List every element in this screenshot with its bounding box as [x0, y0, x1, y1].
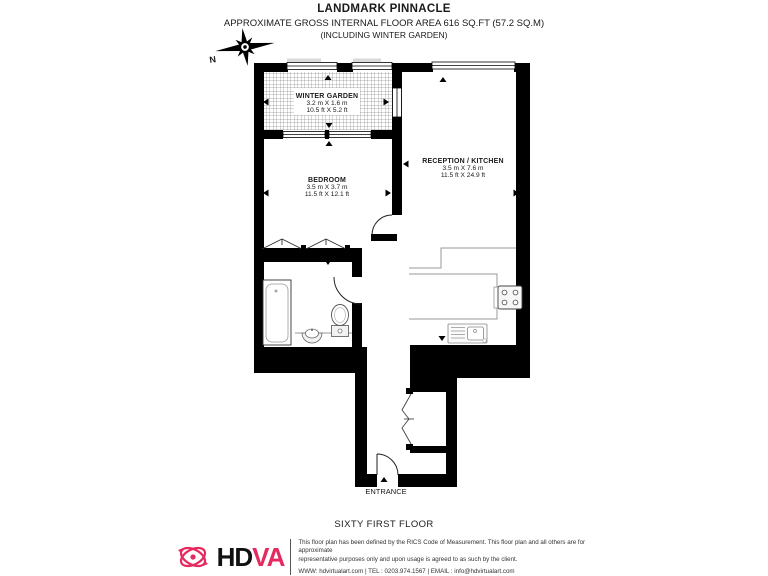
floor-name: SIXTY FIRST FLOOR	[0, 519, 768, 530]
kitchen-sink	[448, 324, 487, 343]
bedroom-door	[372, 215, 392, 235]
bedroom-imperial: 11.5 ft X 12.1 ft	[305, 191, 349, 198]
bedroom-label: BEDROOM	[308, 177, 346, 184]
bathroom-sink	[302, 329, 322, 343]
winter-garden-label: WINTER GARDEN	[296, 93, 359, 100]
disclaimer-line2: representative purposes only and upon us…	[298, 556, 517, 563]
contact-line: WWW: hdvirtualart.com | TEL : 0203.974.1…	[298, 568, 593, 575]
brand-hd: HD	[217, 542, 253, 572]
reception-kitchen-label: RECEPTION / KITCHEN	[422, 158, 504, 165]
hob	[494, 286, 522, 309]
compass-north-label: N	[209, 54, 217, 65]
entrance-label: ENTRANCE	[365, 487, 406, 496]
bedroom-metric: 3.5 m X 3.7 m	[306, 184, 348, 191]
floorplan-drawing: N	[0, 0, 768, 576]
bathroom-door	[334, 277, 361, 304]
legal-text: This floor plan has been defined by the …	[290, 539, 593, 575]
floorplan-page: LANDMARK PINNACLE APPROXIMATE GROSS INTE…	[0, 0, 768, 576]
brand-wordmark: HDVA	[217, 544, 285, 570]
reception-kitchen-imperial: 11.5 ft X 24.9 ft	[441, 172, 485, 179]
winter-garden-metric: 3.2 m X 1.6 m	[306, 100, 348, 107]
winter-garden-imperial: 10.5 ft X 5.2 ft	[306, 107, 347, 114]
footer: HDVA This floor plan has been defined by…	[0, 539, 768, 575]
closet-bifold-doors	[402, 394, 414, 444]
entrance-door	[377, 454, 398, 475]
hdva-logo-icon	[175, 540, 211, 574]
bathtub	[263, 280, 291, 345]
toilet	[332, 305, 349, 337]
reception-kitchen-metric: 3.5 m X 7.6 m	[442, 165, 484, 172]
disclaimer-line1: This floor plan has been defined by the …	[298, 539, 585, 554]
brand-va: VA	[252, 542, 284, 572]
